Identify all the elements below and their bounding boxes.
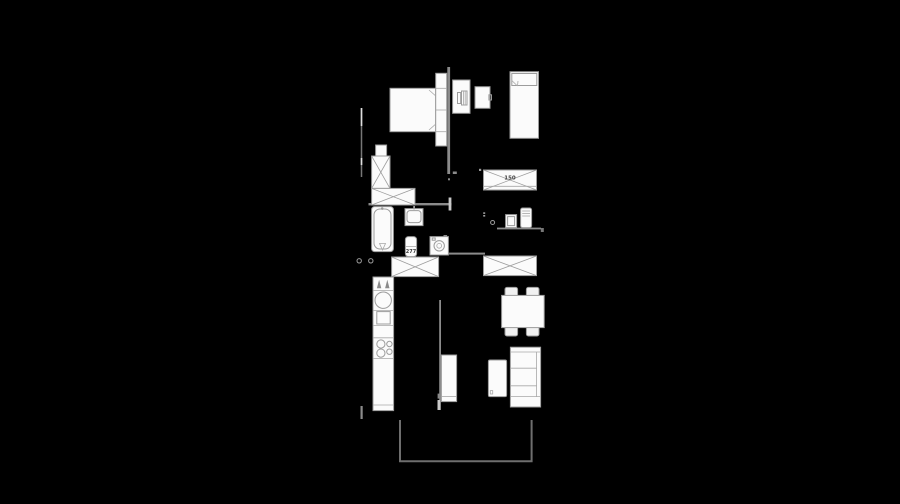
wall-living-bottom-tick: [438, 400, 441, 410]
wall-hallway: [448, 253, 485, 255]
balcony-railing: [400, 420, 532, 461]
wardrobe-corner-tick: [479, 169, 481, 171]
wall-dot: [448, 178, 450, 180]
double-bed: [390, 73, 447, 146]
floor-plan-drawing: 150 277: [0, 0, 900, 504]
single-bed-mattress: [510, 72, 539, 139]
dining-table: [502, 295, 545, 327]
sofa: [510, 347, 540, 407]
wall-living-left: [439, 300, 441, 410]
coffee-table-top: [488, 360, 506, 397]
switch-dash-2: [483, 215, 485, 217]
bathroom-washbasin: [405, 206, 423, 226]
single-bed-fold-2: [518, 81, 519, 86]
bathtub: [372, 207, 394, 252]
desk-with-chair: [453, 80, 470, 113]
floor-drain-symbol: [491, 221, 495, 225]
coffee-table: [488, 360, 506, 397]
tv-board-wall-tick: [438, 394, 441, 399]
washbasin-faucet: [413, 206, 415, 209]
small-cabinet: [475, 87, 492, 109]
wardrobe-size-label: 150: [504, 176, 516, 182]
sofa-body: [510, 347, 540, 407]
kitchen-counter: [373, 277, 394, 411]
wall-kitchen-left-tick: [361, 406, 363, 419]
window-glass-segment: [361, 108, 363, 126]
bathtub-faucet: [381, 207, 384, 210]
door-stop-symbol-1: [357, 259, 361, 263]
window-glass-segment-2: [361, 158, 363, 165]
switch-dash-1: [483, 212, 485, 214]
wall-bedroom-divider: [447, 67, 450, 174]
living-room-wardrobe: [484, 256, 537, 276]
door-stop-symbol-2: [369, 259, 373, 263]
wall-end-cap: [449, 198, 452, 211]
cabinet-body: [475, 87, 490, 109]
washing-machine: [430, 237, 448, 255]
wardrobe-top-box: [376, 145, 387, 156]
bathtub-outer: [372, 207, 394, 252]
l-shaped-wardrobe: [372, 145, 415, 205]
shelf-appliances: [483, 208, 531, 228]
bathroom-wardrobe: [357, 257, 439, 277]
dining-set: [502, 287, 545, 336]
hall-wardrobe: 150: [479, 169, 537, 190]
bed-mattress: [390, 88, 436, 131]
shelf-end-tick: [541, 228, 544, 232]
toilet: 277: [405, 237, 416, 257]
floor-plan-canvas: 150 277: [0, 0, 900, 504]
shelf-line: [497, 228, 541, 230]
toilet-model-label: 277: [406, 249, 417, 255]
single-bed: [510, 72, 539, 139]
door-jamb-tick: [453, 172, 457, 175]
tv-board-body: [441, 355, 456, 402]
washing-machine-body: [430, 237, 448, 255]
